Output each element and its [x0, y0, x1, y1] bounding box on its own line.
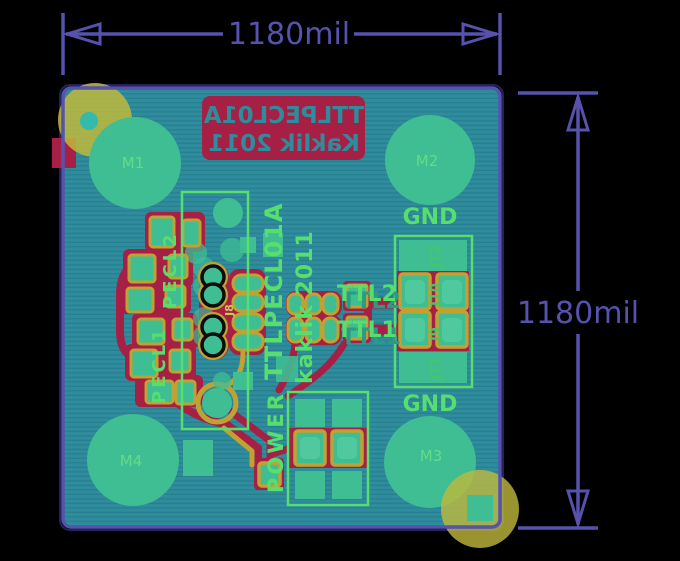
label-m1: M1 [122, 154, 145, 172]
label-m2: M2 [416, 152, 439, 170]
label-ttl2: TTL2 [337, 282, 397, 307]
label-board-author-vertical: kaklik 2011 [293, 230, 318, 384]
label-j8: J8 [223, 304, 236, 317]
label-pecl1: PECL1 [149, 326, 170, 404]
label-gnd-top: GND [403, 205, 458, 230]
dimension-top-label: 1180mil [228, 17, 350, 52]
pcb-render: TTLPECL01A Kaklik 2011 [0, 0, 680, 561]
label-j11: J11 [429, 357, 444, 381]
drill-dot [80, 112, 98, 130]
mount-hole-bottom-right [441, 470, 519, 548]
label-m3: M3 [420, 447, 443, 465]
label-m4: M4 [120, 452, 143, 470]
pcb-preview-canvas: TTLPECL01A Kaklik 2011 [0, 0, 680, 561]
label-j9: J9 [429, 327, 444, 342]
label-j12: J12 [429, 245, 444, 269]
mirrored-author-text: Kaklik 2011 [208, 131, 360, 157]
label-gnd-bottom: GND [403, 392, 458, 417]
mirrored-silkscreen-block: TTLPECL01A Kaklik 2011 [202, 96, 365, 160]
drill-square [467, 495, 493, 521]
label-j10: J10 [429, 283, 444, 307]
label-pecl2: PECL2 [160, 231, 181, 309]
label-board-title-vertical: TTLPECL01A [260, 203, 288, 380]
dimension-right-label: 1180mil [517, 296, 639, 331]
mirrored-title-text: TTLPECL01A [204, 103, 365, 129]
label-power: POWER [264, 391, 288, 493]
label-ttl1: TTL1 [337, 318, 397, 343]
